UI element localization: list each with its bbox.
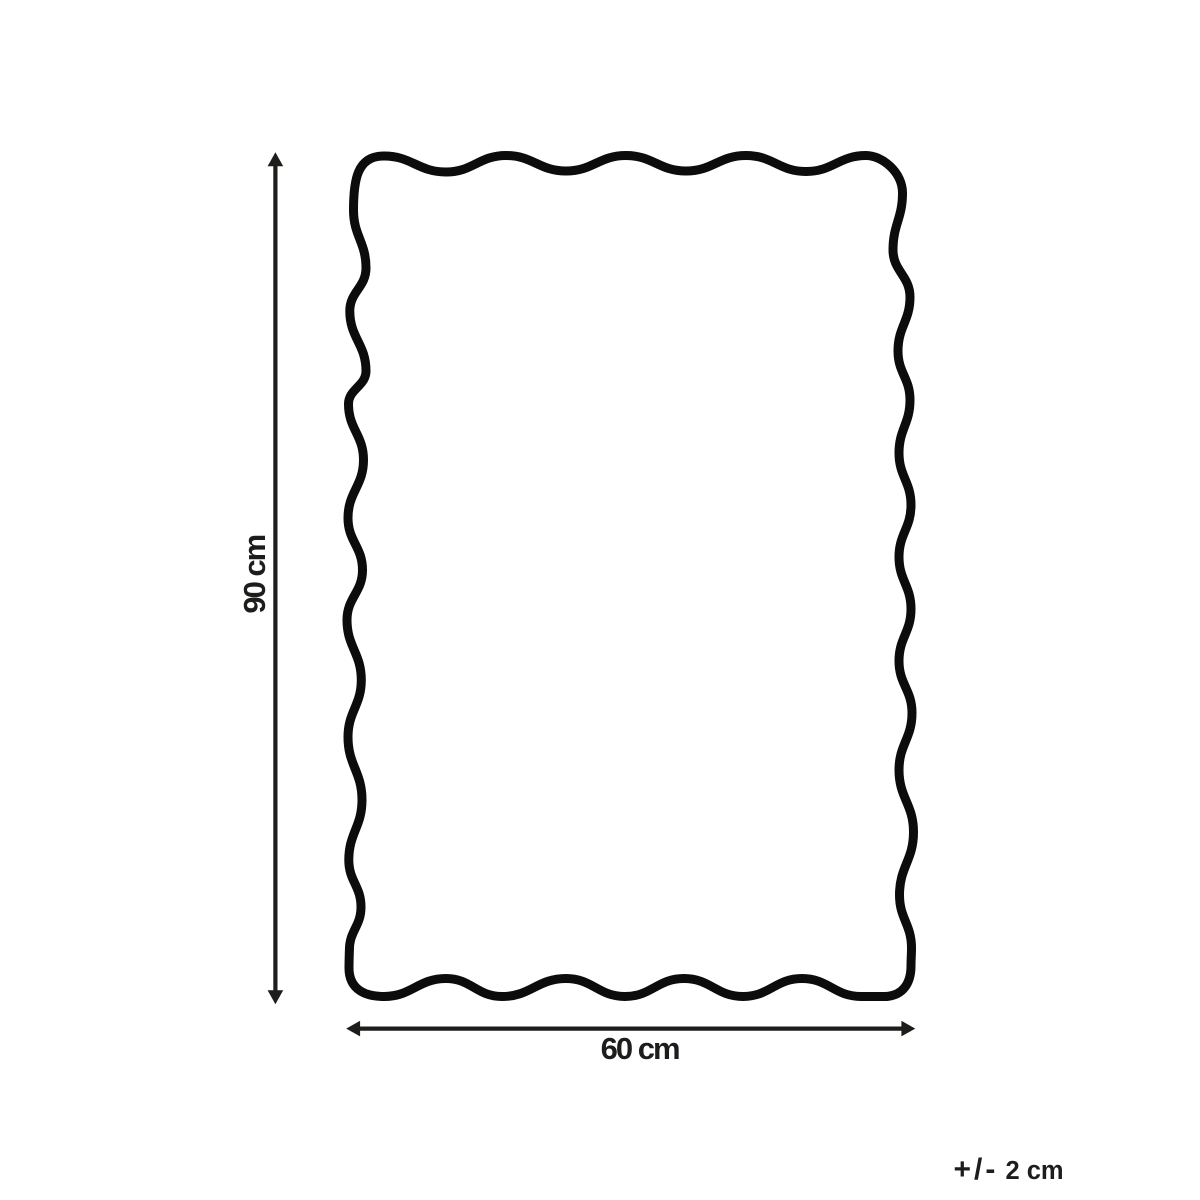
svg-text:+/- 2 cm: +/- 2 cm	[954, 1153, 1064, 1186]
svg-text:90 cm: 90 cm	[237, 535, 272, 613]
svg-text:60 cm: 60 cm	[601, 1031, 679, 1066]
